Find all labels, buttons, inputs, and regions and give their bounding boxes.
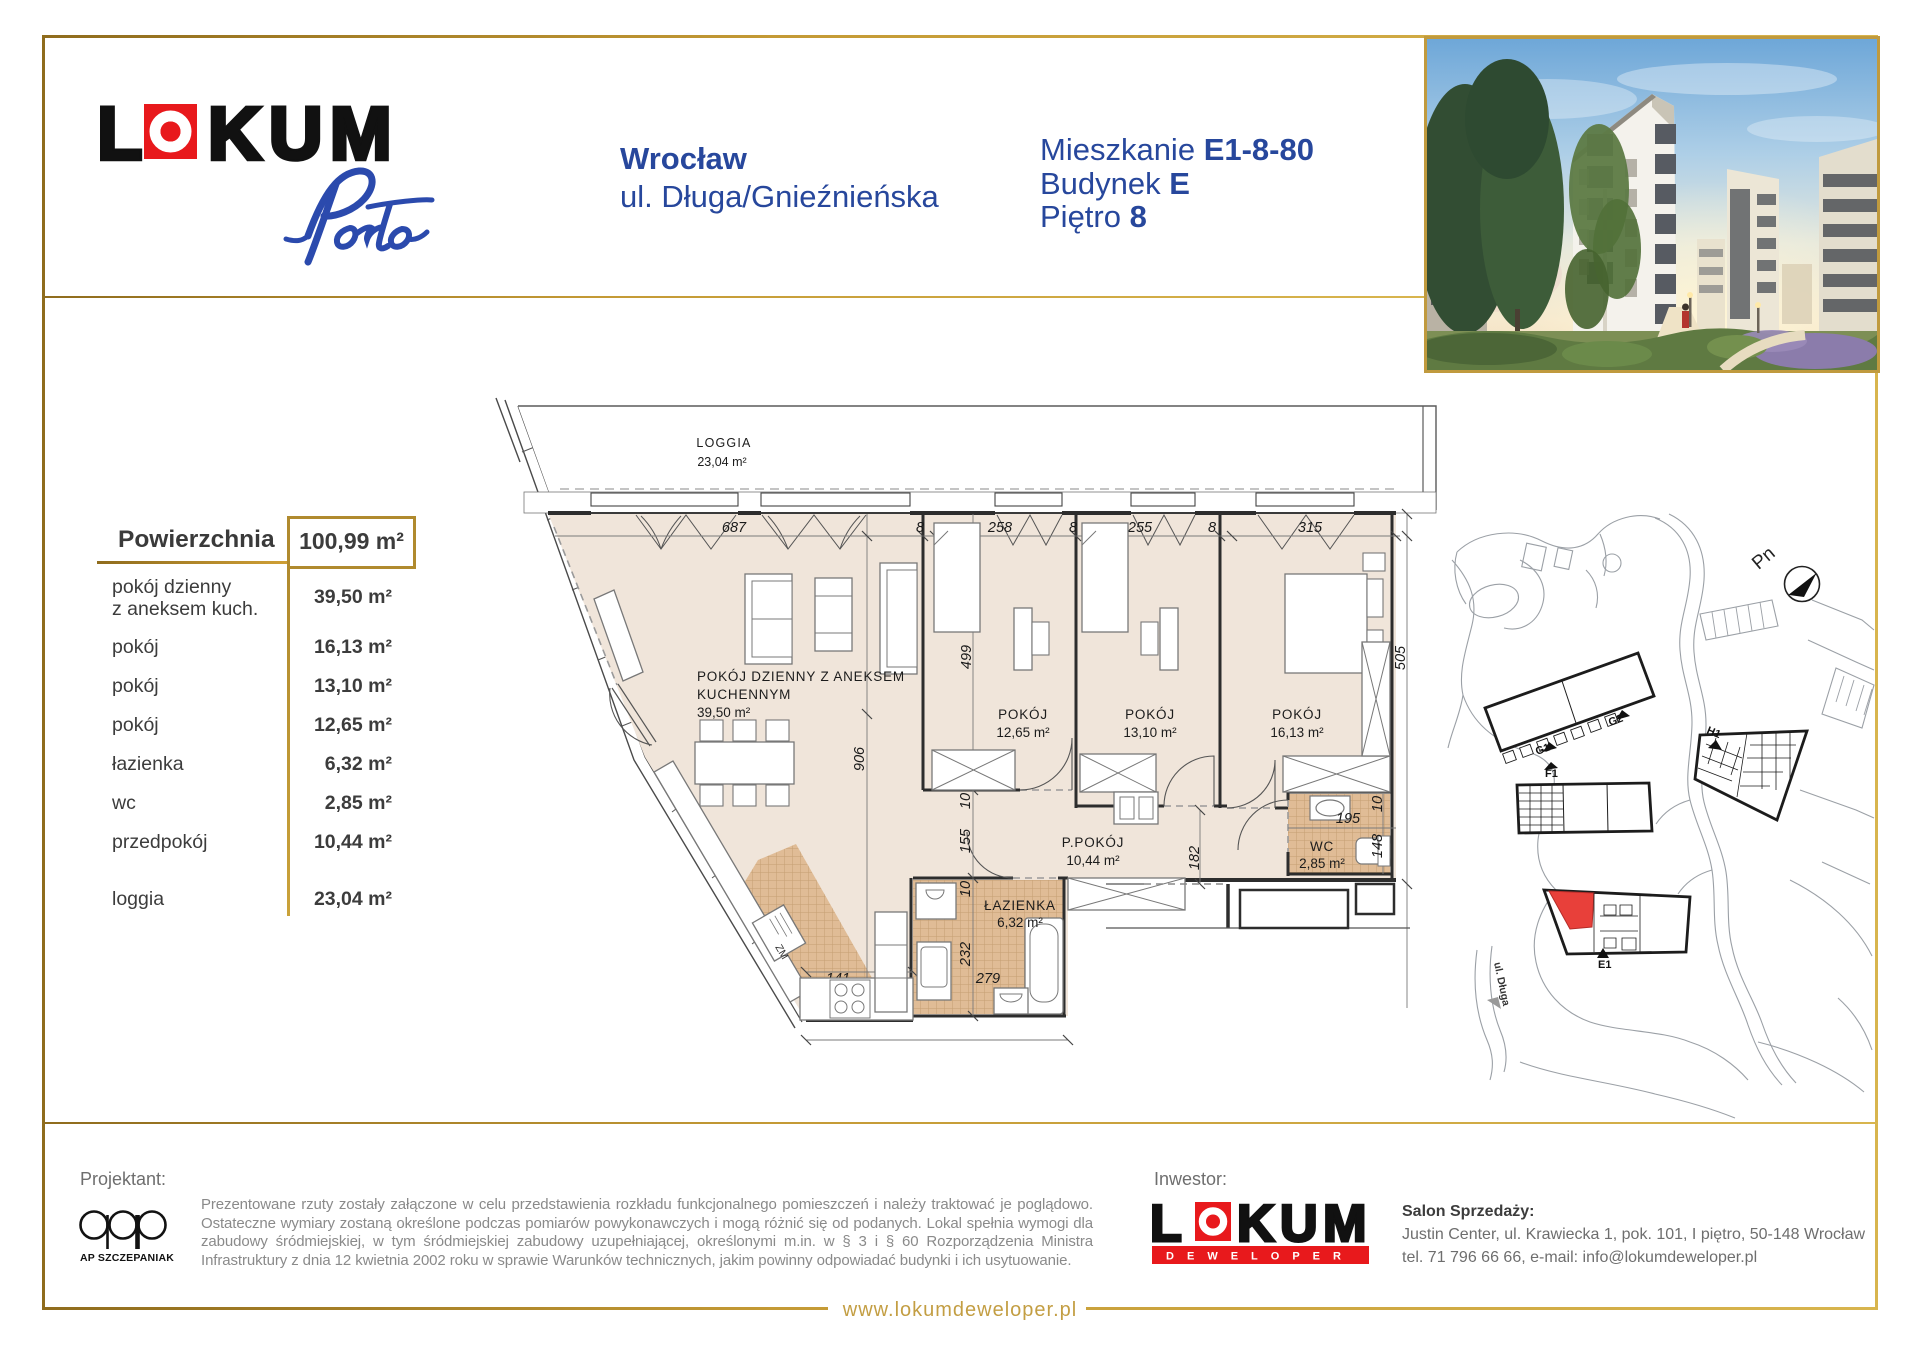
svg-text:POKÓJ: POKÓJ xyxy=(998,707,1048,722)
svg-text:505: 505 xyxy=(1393,645,1409,670)
svg-text:8: 8 xyxy=(1069,520,1077,536)
svg-text:39,50 m²: 39,50 m² xyxy=(697,705,751,720)
svg-text:13,10 m²: 13,10 m² xyxy=(1123,725,1177,740)
svg-text:232: 232 xyxy=(958,942,974,967)
svg-text:155: 155 xyxy=(958,828,974,853)
svg-text:255: 255 xyxy=(1127,520,1153,536)
svg-text:279: 279 xyxy=(975,971,1000,987)
svg-text:8: 8 xyxy=(1208,520,1216,536)
svg-text:ŁAZIENKA: ŁAZIENKA xyxy=(984,898,1056,913)
svg-text:315: 315 xyxy=(1298,520,1323,536)
svg-text:12,65 m²: 12,65 m² xyxy=(996,725,1050,740)
svg-text:499: 499 xyxy=(959,645,975,669)
svg-text:E1: E1 xyxy=(1598,959,1611,971)
svg-text:2,85 m²: 2,85 m² xyxy=(1299,856,1345,871)
svg-text:F1: F1 xyxy=(1545,768,1558,780)
svg-text:10,44 m²: 10,44 m² xyxy=(1066,853,1120,868)
svg-text:10: 10 xyxy=(1370,796,1386,812)
svg-text:16,13 m²: 16,13 m² xyxy=(1270,725,1324,740)
svg-text:LOGGIA: LOGGIA xyxy=(696,436,751,450)
svg-text:POKÓJ: POKÓJ xyxy=(1125,707,1175,722)
svg-text:148: 148 xyxy=(1370,834,1386,858)
svg-text:8: 8 xyxy=(916,520,924,536)
svg-text:WC: WC xyxy=(1310,839,1334,854)
svg-text:10: 10 xyxy=(958,793,974,809)
svg-text:687: 687 xyxy=(722,520,747,536)
svg-text:POKÓJ DZIENNY Z ANEKSEM: POKÓJ DZIENNY Z ANEKSEM xyxy=(697,669,905,684)
svg-text:6,32 m²: 6,32 m² xyxy=(997,915,1043,930)
svg-text:23,04 m²: 23,04 m² xyxy=(697,455,746,469)
svg-text:DEWELOPER: DEWELOPER xyxy=(1166,1251,1354,1263)
svg-text:KUM: KUM xyxy=(1237,1198,1372,1253)
svg-text:POKÓJ: POKÓJ xyxy=(1272,707,1322,722)
svg-text:KUCHENNYM: KUCHENNYM xyxy=(697,687,791,702)
svg-text:258: 258 xyxy=(987,520,1012,536)
svg-text:195: 195 xyxy=(1336,811,1361,827)
svg-text:906: 906 xyxy=(852,746,868,771)
svg-text:182: 182 xyxy=(1187,846,1203,870)
svg-text:L: L xyxy=(1152,1198,1182,1253)
svg-text:10: 10 xyxy=(958,881,974,897)
svg-text:Pn: Pn xyxy=(1748,543,1779,574)
svg-text:P.POKÓJ: P.POKÓJ xyxy=(1062,835,1124,850)
